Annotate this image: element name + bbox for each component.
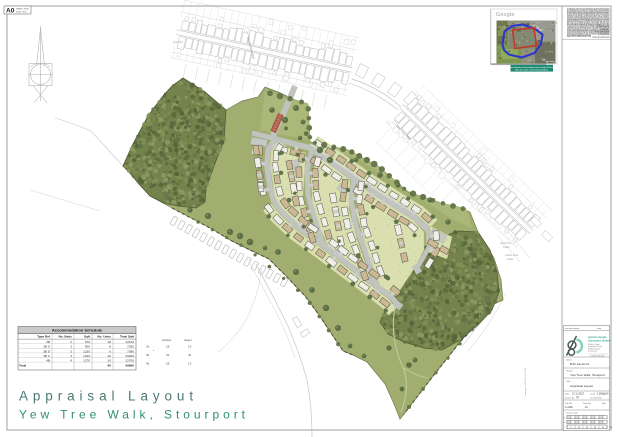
svg-text:7380: 7380 [127, 349, 134, 353]
svg-text:3B S: 3B S [43, 345, 50, 349]
svg-text:granton design: granton design [588, 335, 607, 339]
svg-text:40: 40 [602, 427, 604, 429]
svg-text:Blue line wider ownership boun: Blue line wider ownership boundary [515, 69, 549, 72]
svg-text:4B: 4B [46, 359, 50, 363]
svg-text:are hand drawings work: are hand drawings work [599, 33, 610, 36]
svg-text:Close: Close [503, 245, 510, 249]
svg-text:21.11.2023: 21.11.2023 [572, 393, 584, 396]
svg-text:0: 0 [570, 427, 571, 429]
svg-text:1189 x 841: 1189 x 841 [16, 12, 27, 14]
svg-text:Accommodation Schedule: Accommodation Schedule [52, 328, 103, 333]
svg-text:Total: Total [19, 363, 26, 367]
svg-text:dimensions figured verificatio: dimensions figured verification boundary [593, 36, 610, 39]
svg-text:3B D: 3B D [43, 349, 51, 353]
svg-text:10: 10 [578, 427, 580, 429]
svg-text:Total Sqft: Total Sqft [120, 335, 134, 339]
svg-text:Dwg No: Dwg No [583, 403, 592, 405]
svg-text:A0: A0 [6, 8, 15, 15]
svg-text:60: 60 [108, 363, 112, 367]
svg-text:Appraisal Layout: Appraisal Layout [570, 384, 593, 388]
svg-text:scale: scale [590, 394, 596, 396]
svg-text:target: target [184, 338, 192, 342]
svg-text:plotted: plotted [162, 338, 171, 342]
svg-text:19: 19 [188, 345, 192, 349]
svg-text:34: 34 [188, 353, 192, 357]
svg-text:4: 4 [70, 359, 72, 363]
svg-text:18: 18 [166, 362, 170, 366]
svg-text:Scale 1:500: Scale 1:500 [566, 413, 578, 415]
svg-text:20: 20 [586, 427, 588, 429]
svg-text:670: 670 [85, 340, 90, 344]
svg-text:3b: 3b [146, 353, 150, 357]
svg-text:High Tree: High Tree [500, 241, 512, 245]
svg-text:20200: 20200 [125, 354, 134, 358]
svg-text:Drawn by: Drawn by [565, 397, 575, 400]
svg-text:SHEET SIZE: SHEET SIZE [16, 9, 29, 11]
svg-text:6: 6 [109, 349, 111, 353]
svg-text:Job No: Job No [565, 403, 573, 405]
svg-text:on issue drawing figured: on issue drawing figured [595, 31, 610, 34]
svg-text:Sqft: Sqft [84, 335, 90, 339]
svg-text:4b: 4b [146, 362, 150, 366]
svg-text:900: 900 [85, 345, 90, 349]
svg-text:3: 3 [70, 345, 72, 349]
svg-text:8: 8 [109, 345, 111, 349]
svg-text:1230: 1230 [83, 349, 90, 353]
svg-text:all boundary subject on: all boundary subject on [601, 28, 610, 31]
svg-text:12700: 12700 [125, 359, 134, 363]
svg-text:1:500@A0: 1:500@A0 [597, 393, 609, 396]
svg-text:2: 2 [70, 340, 72, 344]
svg-text:rev description: rev description [565, 327, 580, 330]
svg-text:Green Acre: Green Acre [505, 253, 519, 257]
svg-text:13: 13 [188, 362, 192, 366]
svg-text:A-1236: A-1236 [565, 406, 573, 409]
svg-text:Appraisal Layout: Appraisal Layout [19, 389, 198, 404]
svg-text:do drawing is are: do drawing is are [597, 25, 611, 28]
svg-text:Close: Close [507, 257, 514, 261]
svg-text:20: 20 [108, 354, 112, 358]
svg-text:No. Units: No. Units [97, 335, 111, 339]
svg-text:Yew Tree Walk, Stourport: Yew Tree Walk, Stourport [570, 373, 605, 377]
svg-text:7200: 7200 [127, 345, 134, 349]
svg-text:Type Ref: Type Ref [37, 335, 51, 339]
svg-text:3: 3 [70, 354, 72, 358]
svg-text:1010: 1010 [83, 354, 90, 358]
svg-text:drawing no. 2023-10 print 1:5: drawing no. 2023-10 print 1:500 [524, 367, 527, 396]
svg-text:3: 3 [70, 349, 72, 353]
svg-text:10: 10 [108, 359, 112, 363]
svg-text:associates limited: associates limited [588, 339, 611, 343]
svg-text:18: 18 [166, 345, 170, 349]
svg-text:2B: 2B [46, 340, 50, 344]
svg-text:2b: 2b [146, 345, 150, 349]
svg-text:Checked by: Checked by [590, 398, 602, 400]
svg-text:18: 18 [108, 340, 112, 344]
svg-text:1270: 1270 [83, 359, 90, 363]
svg-text:BJC Land Ltd: BJC Land Ltd [570, 362, 589, 366]
svg-text:12120: 12120 [125, 340, 134, 344]
svg-text:before this the hand boundary: before this the hand boundary scale [567, 35, 591, 38]
svg-text:Google: Google [496, 12, 515, 18]
svg-text:No. Beds: No. Beds [59, 335, 73, 339]
svg-text:t. 01562 000 000: t. 01562 000 000 [590, 354, 604, 357]
svg-text:Map data: Map data [546, 60, 554, 63]
svg-text:30: 30 [594, 427, 596, 429]
svg-text:DY11 7QT: DY11 7QT [588, 351, 598, 353]
svg-text:50: 50 [610, 427, 612, 429]
svg-text:59600: 59600 [125, 363, 134, 367]
svg-text:TP: TP [576, 397, 579, 400]
svg-text:Lime Rd: Lime Rd [173, 40, 183, 44]
svg-text:Red line denotes site boundary: Red line denotes site boundary from Goog… [505, 66, 558, 69]
svg-text:Yew Tree Walk, Stourport: Yew Tree Walk, Stourport [19, 408, 249, 422]
svg-text:3B C: 3B C [43, 354, 51, 358]
svg-text:34: 34 [166, 353, 170, 357]
